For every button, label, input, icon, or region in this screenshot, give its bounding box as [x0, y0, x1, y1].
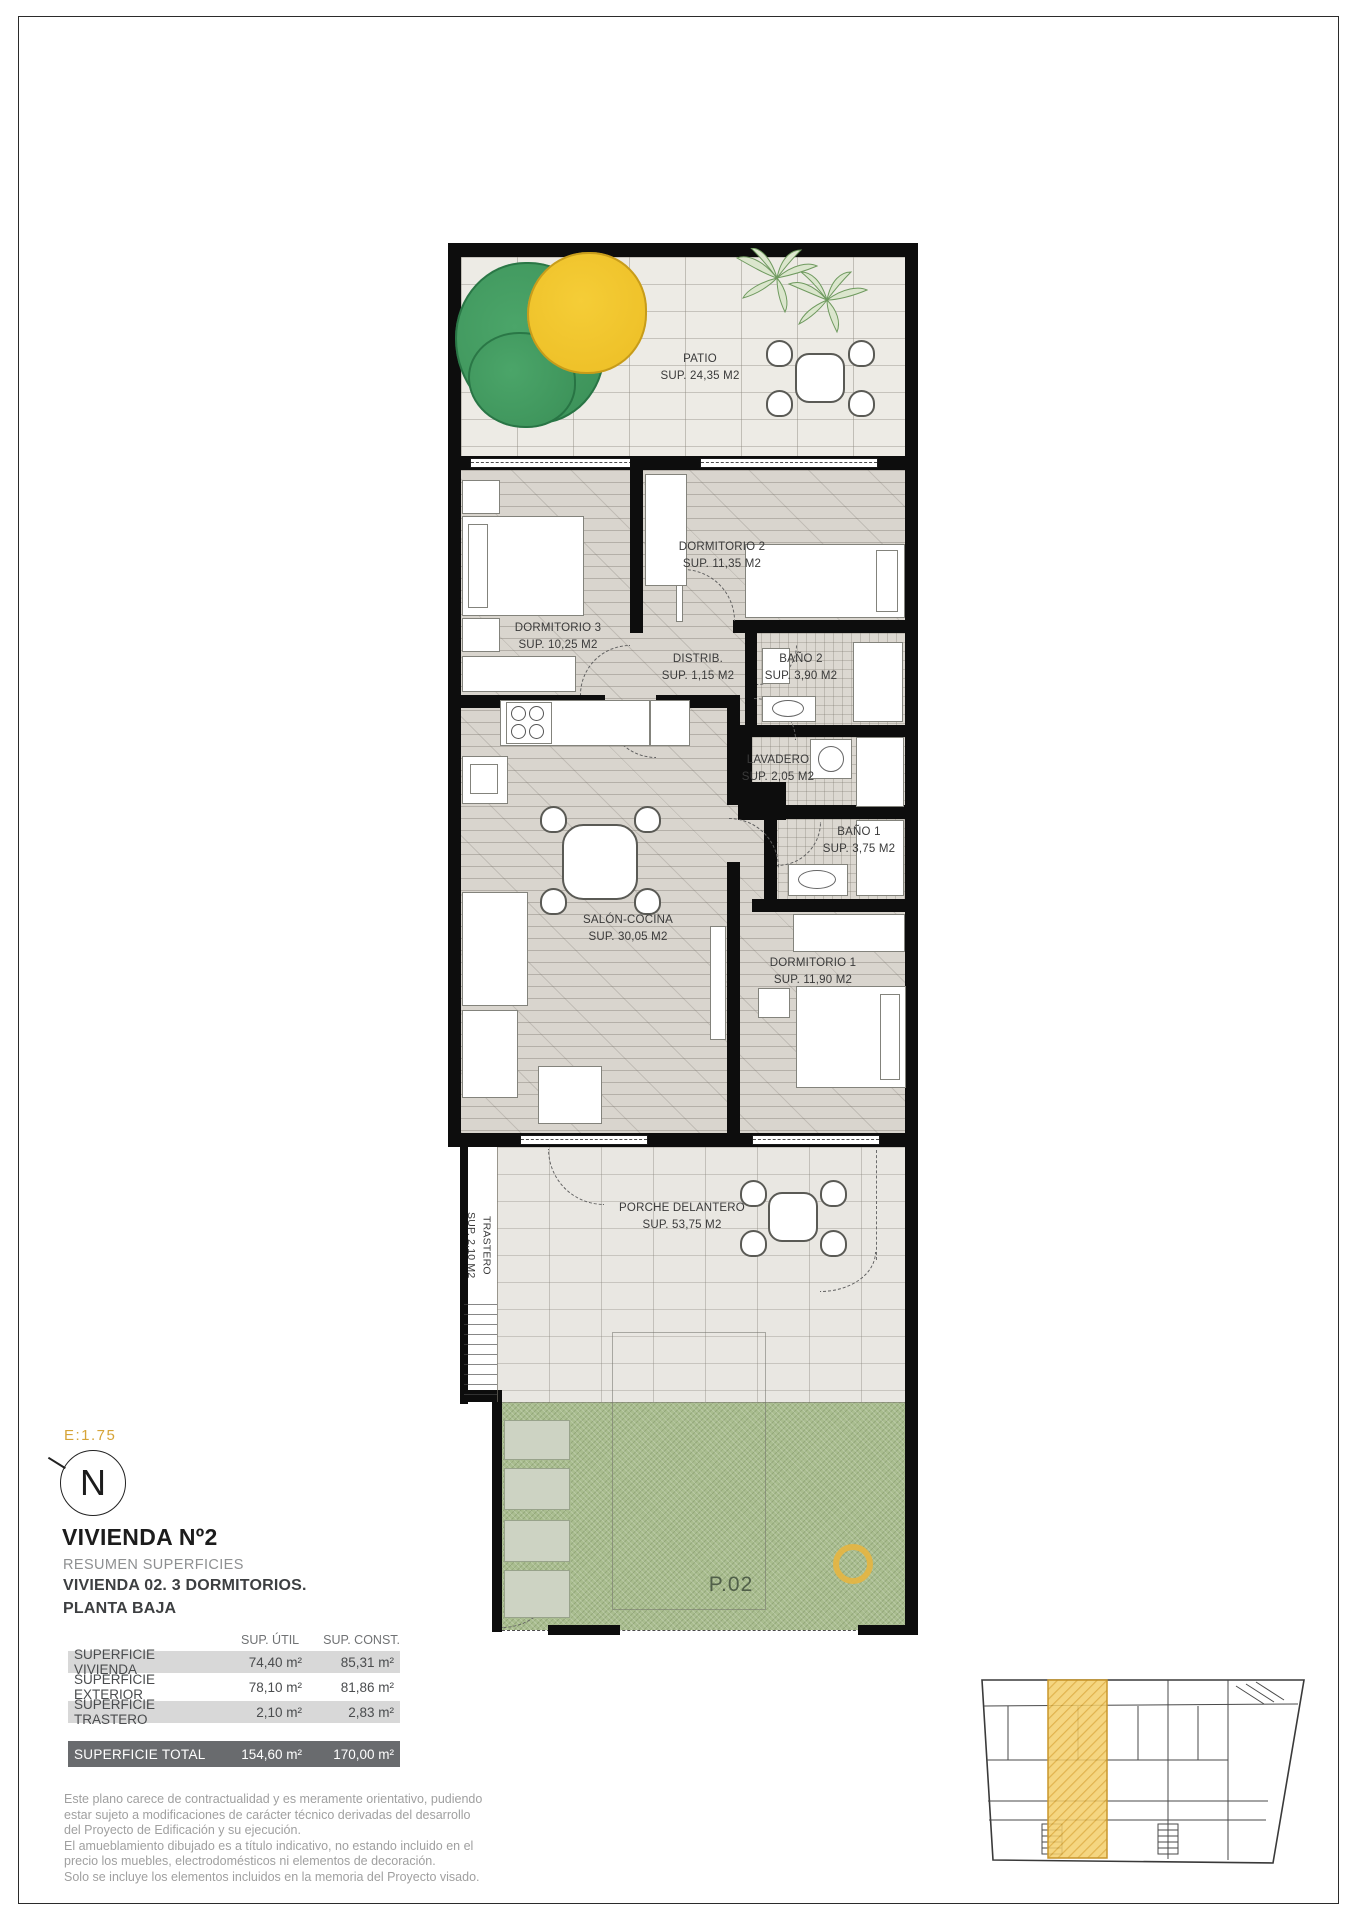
room-label-trastero: TRASTEROSUP. 2,10 M2 — [462, 1212, 494, 1278]
laundry-unit — [856, 737, 904, 807]
patio-window-right — [700, 458, 878, 468]
table-row: SUPERFICIE EXTERIOR 78,10 m² 81,86 m² — [68, 1676, 400, 1698]
dining-chair — [540, 806, 567, 833]
table-row: SUPERFICIE TRASTERO 2,10 m² 2,83 m² — [68, 1701, 400, 1723]
wall-garden-left — [492, 1402, 502, 1632]
surface-table-header: SUP. ÚTIL SUP. CONST. — [68, 1633, 400, 1647]
wall-corner-block — [738, 782, 786, 820]
floor-plan-page: P.02 PATIOSUP. 24,35 M2 DORMITORIO 2SUP.… — [0, 0, 1357, 1920]
nightstand — [758, 988, 790, 1018]
burner — [511, 706, 526, 721]
wardrobe-bed3 — [462, 656, 576, 692]
page-title: VIVIENDA Nº2 — [62, 1524, 218, 1551]
shower-bath2 — [853, 642, 903, 722]
location-mini-plan — [968, 1660, 1320, 1872]
builder-logo-ring — [833, 1544, 873, 1584]
dining-chair — [540, 888, 567, 915]
porch-table — [768, 1192, 818, 1242]
wall-living-bed1 — [727, 862, 740, 1133]
wall-bed3-bed2 — [630, 456, 643, 633]
washer-drum — [818, 746, 844, 772]
dwelling-description: VIVIENDA 02. 3 DORMITORIOS. — [63, 1577, 307, 1595]
storage-ladder — [464, 1295, 497, 1395]
porch-chair — [820, 1180, 847, 1207]
burner — [511, 724, 526, 739]
table-total-row: SUPERFICIE TOTAL 154,60 m² 170,00 m² — [68, 1741, 400, 1767]
porch-window-left — [520, 1135, 648, 1145]
kitchen-sink — [470, 764, 498, 794]
scale-label: E:1.75 — [64, 1427, 116, 1444]
garden-wall-segment — [858, 1625, 906, 1635]
sofa — [462, 892, 528, 1006]
highlighted-unit — [1048, 1680, 1107, 1858]
bed2-pillow — [876, 550, 898, 612]
wardrobe-bed1 — [793, 914, 905, 952]
kitchen-column — [650, 700, 690, 746]
room-label-bano1: BAÑO 1SUP. 3,75 M2 — [823, 824, 896, 859]
storage-divider — [497, 1147, 498, 1402]
room-label-dormitorio2: DORMITORIO 2SUP. 11,35 M2 — [679, 539, 766, 574]
wall-right — [905, 243, 918, 1635]
room-label-lavadero: LAVADEROSUP. 2,05 M2 — [742, 752, 815, 787]
tv-sideboard — [710, 926, 726, 1040]
room-label-patio: PATIOSUP. 24,35 M2 — [660, 351, 739, 386]
wall-bath1-bed1 — [752, 899, 905, 912]
room-label-distribuidor: DISTRIB.SUP. 1,15 M2 — [662, 651, 735, 686]
patio-chair — [848, 390, 875, 417]
surface-table: SUP. ÚTIL SUP. CONST. SUPERFICIE VIVIEND… — [68, 1633, 400, 1767]
column-header-const: SUP. CONST. — [323, 1633, 400, 1647]
garden-paver — [504, 1468, 570, 1510]
room-label-bano2: BAÑO 2SUP. 3,90 M2 — [765, 651, 838, 686]
patio-table — [795, 353, 845, 403]
north-compass-icon: N — [60, 1450, 126, 1516]
garden-wall-segment — [548, 1625, 620, 1635]
nightstand — [462, 618, 500, 652]
patio-chair — [766, 340, 793, 367]
patio-window-left — [470, 458, 638, 468]
porch-window-right — [752, 1135, 880, 1145]
nightstand — [462, 480, 500, 514]
armchair — [462, 1010, 518, 1098]
burner — [529, 706, 544, 721]
terrace-outline — [612, 1332, 766, 1610]
wall-bed2-bottom — [733, 620, 905, 633]
coffee-table — [538, 1066, 602, 1124]
sink-bath1-bowl — [798, 870, 836, 889]
room-label-porche: PORCHE DELANTEROSUP. 53,75 M2 — [619, 1200, 745, 1235]
column-header-util: SUP. ÚTIL — [241, 1633, 299, 1647]
tree-yellow — [527, 252, 647, 374]
garden-paver — [504, 1420, 570, 1460]
bed3-pillow — [468, 524, 488, 608]
bed1-pillow — [880, 994, 900, 1080]
dining-chair — [634, 806, 661, 833]
room-label-dormitorio3: DORMITORIO 3SUP. 10,25 M2 — [515, 620, 602, 655]
dining-table — [562, 824, 638, 900]
porch-dashed-line — [876, 1150, 877, 1260]
floor-level: PLANTA BAJA — [63, 1600, 176, 1618]
garden-paver — [504, 1520, 570, 1562]
room-label-salon: SALÓN-COCINASUP. 30,05 M2 — [583, 912, 673, 947]
palm-plants — [735, 248, 875, 334]
room-label-dormitorio1: DORMITORIO 1SUP. 11,90 M2 — [770, 955, 857, 990]
wall-living-hall — [727, 705, 740, 805]
burner — [529, 724, 544, 739]
sink-bath2-bowl — [772, 700, 804, 717]
garden-paver — [504, 1570, 570, 1618]
table-row: SUPERFICIE VIVIENDA 74,40 m² 85,31 m² — [68, 1651, 400, 1673]
disclaimer-text: Este plano carece de contractualidad y e… — [64, 1792, 484, 1885]
wall-laundry-bath1 — [786, 805, 905, 819]
patio-chair — [766, 390, 793, 417]
parcel-label: P.02 — [709, 1573, 754, 1597]
patio-chair — [848, 340, 875, 367]
page-subtitle: RESUMEN SUPERFICIES — [63, 1557, 244, 1573]
